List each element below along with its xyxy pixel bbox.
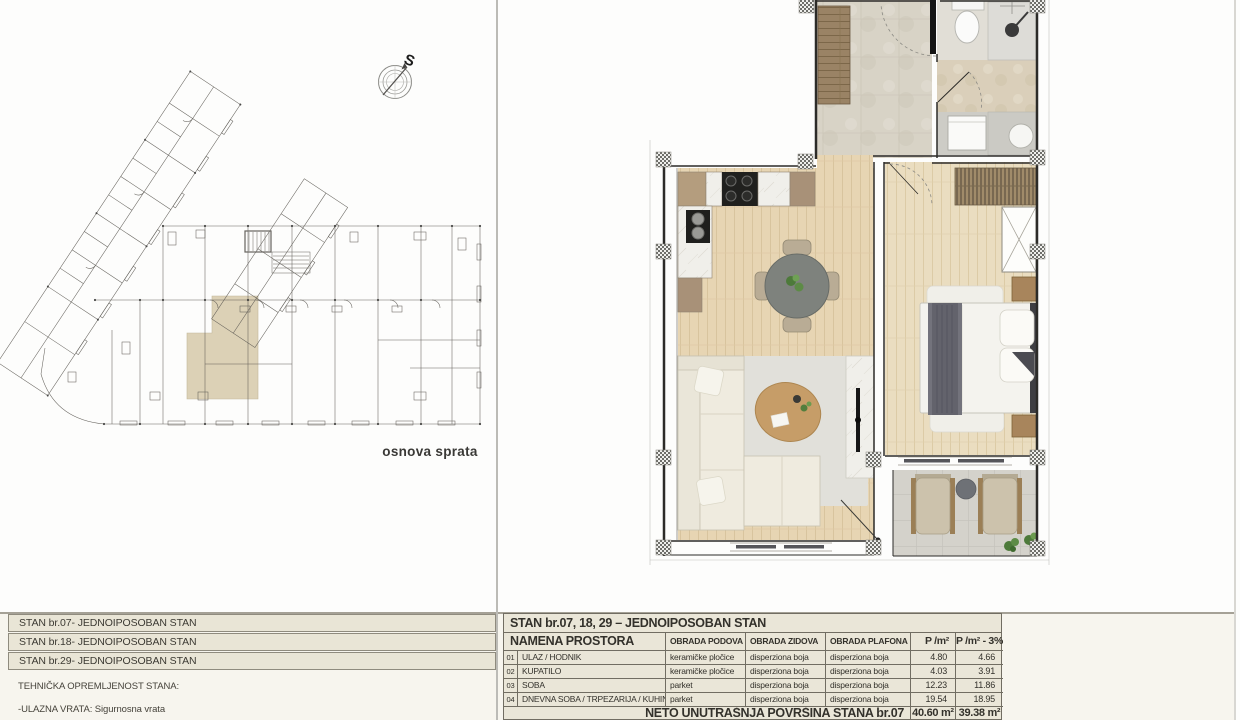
apartment-list-label: STAN br.07- JEDNOIPOSOBAN STAN <box>19 617 197 629</box>
window-glazing <box>904 459 950 463</box>
footer-area-total: 40.60 m² <box>911 707 956 720</box>
row-name: ULAZ / HODNIK <box>518 651 666 665</box>
nightstand <box>1012 277 1036 301</box>
row-area-reduced: 3.91 <box>956 665 1003 679</box>
tech-equipment-title: TEHNIČKA OPREMLJENOST STANA: <box>18 681 179 692</box>
col-header-floor: OBRADA PODOVA <box>666 633 746 651</box>
row-walls: disperziona boja <box>746 651 826 665</box>
plan-caption: osnova sprata <box>382 444 478 459</box>
row-walls: disperziona boja <box>746 693 826 707</box>
sink-icon <box>1009 124 1033 148</box>
apartment-list-item: STAN br.29- JEDNOIPOSOBAN STAN <box>8 652 496 670</box>
hall-wardrobe <box>818 6 850 104</box>
row-num: 02 <box>504 665 518 679</box>
apartment-list-label: STAN br.18- JEDNOIPOSOBAN STAN <box>19 636 197 648</box>
apartment-detail-plan <box>500 0 1237 612</box>
col-header-ceiling: OBRADA PLAFONA <box>826 633 911 651</box>
row-area: 4.03 <box>911 665 956 679</box>
row-name: KUPATILO <box>518 665 666 679</box>
row-area-reduced: 18.95 <box>956 693 1003 707</box>
floor-plan-sheet: S osnova sprata <box>0 0 1240 720</box>
pillow <box>1000 310 1034 346</box>
apartment-list-label: STAN br.29- JEDNOIPOSOBAN STAN <box>19 655 197 667</box>
row-floor: parket <box>666 693 746 707</box>
apartment-list-item: STAN br.07- JEDNOIPOSOBAN STAN <box>8 614 496 632</box>
row-num: 01 <box>504 651 518 665</box>
row-area: 4.80 <box>911 651 956 665</box>
dining-chair <box>783 240 811 255</box>
col-header-area: P /m² <box>911 633 956 651</box>
spec-table: STAN br.07, 18, 29 – JEDNOIPOSOBAN STAN … <box>503 613 1002 720</box>
row-ceiling: disperziona boja <box>826 651 911 665</box>
window-glazing <box>736 545 776 549</box>
window-glazing <box>958 459 1004 463</box>
footer-label: NETO UNUTRAŠNJA POVRŠINA STANA br.07 <box>504 707 911 720</box>
row-area-reduced: 4.66 <box>956 651 1003 665</box>
row-walls: disperziona boja <box>746 679 826 693</box>
col-header-name: NAMENA PROSTORA <box>504 633 666 651</box>
building-overview-plan: S osnova sprata <box>0 0 497 612</box>
dining-chair <box>783 317 811 332</box>
nightstand <box>1012 415 1036 437</box>
row-floor: keramičke pločice <box>666 651 746 665</box>
washing-machine-icon <box>948 116 986 150</box>
entry-door <box>930 0 936 54</box>
toilet-icon <box>952 1 984 10</box>
row-name: DNEVNA SOBA / TRPEZARIJA / KUHINJA <box>518 693 666 707</box>
apartment-list-item: STAN br.18- JEDNOIPOSOBAN STAN <box>8 633 496 651</box>
spec-table-title: STAN br.07, 18, 29 – JEDNOIPOSOBAN STAN <box>504 614 1001 633</box>
north-letter: S <box>402 51 418 71</box>
bathroom-floor-mid <box>937 60 1036 112</box>
footer-area-reduced-total: 39.38 m² <box>956 707 1003 720</box>
row-ceiling: disperziona boja <box>826 693 911 707</box>
col-header-walls: OBRADA ZIDOVA <box>746 633 826 651</box>
row-name: SOBA <box>518 679 666 693</box>
row-num: 03 <box>504 679 518 693</box>
tech-equipment-item: -ULAZNA VRATA: Sigurnosna vrata <box>18 704 165 715</box>
row-walls: disperziona boja <box>746 665 826 679</box>
row-ceiling: disperziona boja <box>826 679 911 693</box>
row-num: 04 <box>504 693 518 707</box>
compass-icon: S <box>378 51 417 99</box>
row-area: 12.23 <box>911 679 956 693</box>
row-floor: parket <box>666 679 746 693</box>
row-ceiling: disperziona boja <box>826 665 911 679</box>
row-area-reduced: 11.86 <box>956 679 1003 693</box>
terrace-table <box>956 479 976 499</box>
row-area: 19.54 <box>911 693 956 707</box>
hall-passage-floor <box>817 155 873 169</box>
col-header-area-reduced: P /m² - 3% <box>956 633 1003 651</box>
window-glazing <box>784 545 824 549</box>
row-floor: keramičke pločice <box>666 665 746 679</box>
